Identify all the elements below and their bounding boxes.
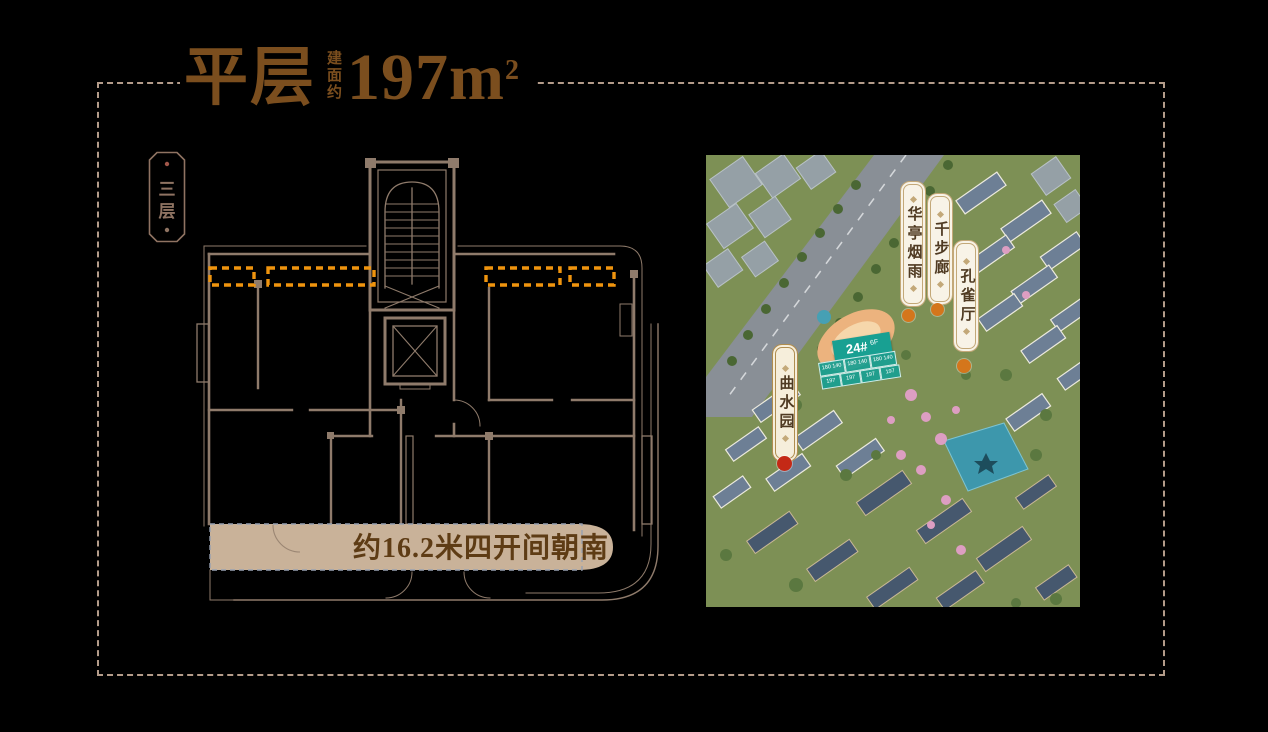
area-prefix: 建面约 xyxy=(325,50,340,101)
location-dot-0 xyxy=(902,309,915,322)
aerial-rendering: 华亭烟雨千步廊孔雀厅曲水园 24# 6F 180 140180 140180 1… xyxy=(706,155,1080,607)
area-superscript: 2 xyxy=(505,55,520,86)
aerial-illustration xyxy=(706,155,1080,607)
plaque-ornament-icon xyxy=(781,434,788,441)
floor-tag-char-1: 三 xyxy=(159,180,176,199)
location-dot-3 xyxy=(777,456,792,471)
location-dot-1 xyxy=(931,303,944,316)
plaque-ornament-icon xyxy=(781,364,788,371)
title-text: 平层 xyxy=(184,42,316,114)
plaque-ornament-icon xyxy=(909,285,916,292)
plaque-ornament-icon xyxy=(936,210,943,217)
door-swing-balcony xyxy=(386,572,490,598)
floor-tag-top-dot xyxy=(165,162,169,166)
floor-tag-char-2: 层 xyxy=(159,202,176,221)
plaque-1: 千步廊 xyxy=(927,193,953,305)
plaque-ornament-icon xyxy=(962,327,969,334)
building-banner-label: 24# xyxy=(845,340,868,356)
plaque-2: 孔雀厅 xyxy=(953,240,979,352)
south-label: 约16.2米四开间朝南 xyxy=(353,532,609,564)
plaque-label: 曲水园 xyxy=(778,375,793,432)
stairwell xyxy=(370,162,454,310)
floor-tag-bottom-dot xyxy=(165,228,169,232)
page: 平层 建面约 197m2 三 层 xyxy=(0,0,1268,732)
elevator xyxy=(385,318,445,389)
plaque-label: 华亭烟雨 xyxy=(906,206,921,282)
door-swing-hall xyxy=(454,400,480,426)
plaque-0: 华亭烟雨 xyxy=(900,181,926,307)
closet xyxy=(620,304,632,336)
plaque-ornament-icon xyxy=(936,280,943,287)
plaque-label: 千步廊 xyxy=(933,221,948,278)
plaque-ornament-icon xyxy=(962,257,969,264)
floorplan: 约16.2米四开间朝南 xyxy=(196,148,666,618)
floor-tag: 三 层 xyxy=(148,151,186,243)
area-value: 197m2 xyxy=(347,42,520,114)
plaque-ornament-icon xyxy=(909,196,916,203)
plaque-label: 孔雀厅 xyxy=(959,268,974,325)
south-band: 约16.2米四开间朝南 xyxy=(210,524,613,570)
plaque-3: 曲水园 xyxy=(772,344,798,462)
building-banner-floors: 6F xyxy=(870,339,879,347)
location-dot-2 xyxy=(957,359,971,373)
left-bay-window xyxy=(197,324,209,382)
page-title: 平层 建面约 197m2 xyxy=(180,42,534,118)
